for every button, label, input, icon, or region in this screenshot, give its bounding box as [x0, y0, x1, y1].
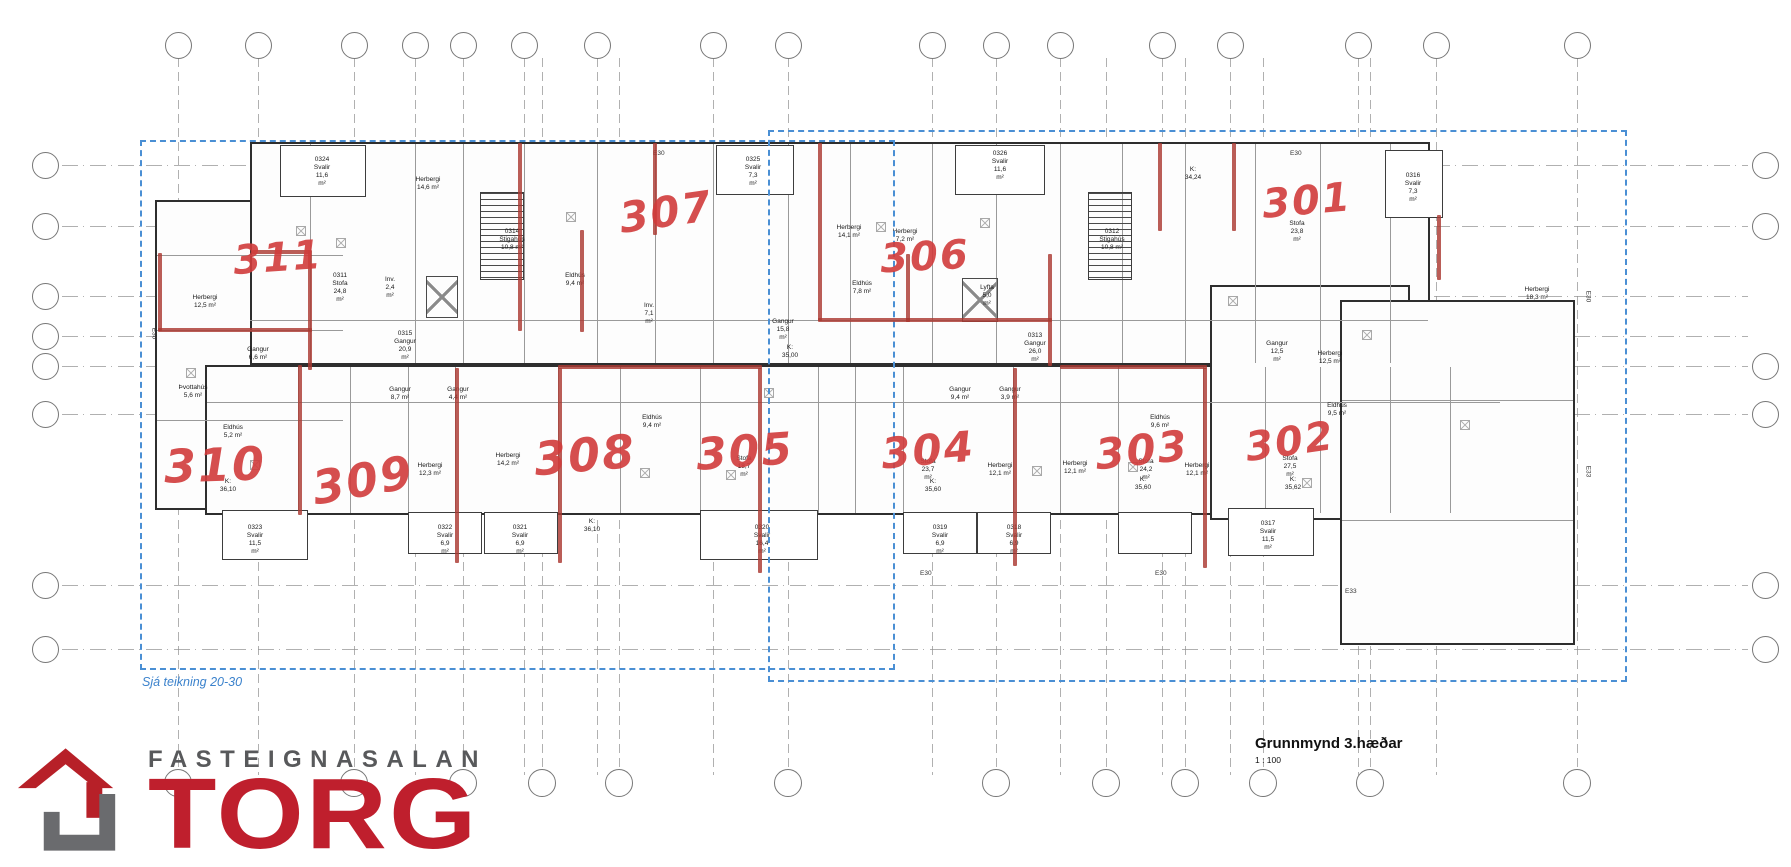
apartment-number: 306 — [879, 232, 971, 283]
grid-bubble-top — [1217, 32, 1244, 59]
apartment-boundary-mark — [1158, 143, 1162, 231]
grid-bubble-right — [1752, 401, 1779, 428]
grid-bubble-top — [1423, 32, 1450, 59]
grid-bubble-left — [32, 572, 59, 599]
logo-brand-text: TORG — [148, 774, 528, 854]
apartment-boundary-mark — [1437, 215, 1441, 280]
house-logo-icon — [14, 742, 138, 852]
apartment-boundary-mark — [1232, 143, 1236, 231]
apartment-number: 311 — [232, 232, 324, 284]
grid-bubble-top — [775, 32, 802, 59]
grid-bubble-top — [700, 32, 727, 59]
grid-bubble-top — [165, 32, 192, 59]
apartment-boundary-mark — [818, 143, 822, 321]
title-block: Grunnmynd 3.hæðar 1 : 100 — [1255, 735, 1403, 765]
grid-bubble-top — [584, 32, 611, 59]
apartment-number: 304 — [879, 422, 977, 479]
grid-bubble-left — [32, 283, 59, 310]
grid-bubble-bottom — [1092, 769, 1120, 797]
grid-bubble-top — [983, 32, 1010, 59]
apartment-boundary-mark — [580, 230, 584, 332]
grid-bubble-left — [32, 636, 59, 663]
apartment-boundary-mark — [558, 365, 762, 369]
apartment-number: 301 — [1260, 174, 1353, 228]
grid-bubble-top — [919, 32, 946, 59]
grid-bubble-left — [32, 401, 59, 428]
grid-bubble-top — [341, 32, 368, 59]
grid-bubble-left — [32, 323, 59, 350]
grid-bubble-bottom — [774, 769, 802, 797]
grid-bubble-bottom — [1249, 769, 1277, 797]
grid-bubble-top — [1047, 32, 1074, 59]
grid-bubble-top — [1149, 32, 1176, 59]
apartment-boundary-mark — [818, 318, 910, 322]
grid-bubble-left — [32, 213, 59, 240]
apartment-number: 308 — [532, 424, 638, 487]
grid-bubble-right — [1752, 572, 1779, 599]
grid-bubble-top — [1564, 32, 1591, 59]
drawing-scale: 1 : 100 — [1255, 755, 1403, 765]
grid-bubble-right — [1752, 213, 1779, 240]
grid-bubble-left — [32, 152, 59, 179]
drawing-title: Grunnmynd 3.hæðar — [1255, 735, 1403, 752]
apartment-number: 303 — [1093, 421, 1191, 480]
apartment-boundary-mark — [1048, 254, 1052, 366]
apartment-boundary-mark — [1013, 368, 1017, 566]
apartment-boundary-mark — [1060, 365, 1207, 369]
grid-bubble-right — [1752, 152, 1779, 179]
apartment-boundary-mark — [158, 253, 162, 331]
apartment-boundary-mark — [298, 365, 302, 515]
apartment-boundary-mark — [158, 328, 312, 332]
grid-bubble-top — [1345, 32, 1372, 59]
reference-dashed-box — [768, 130, 1627, 682]
grid-bubble-top — [450, 32, 477, 59]
reference-caption: Sjá teikning 20-30 — [142, 675, 242, 689]
grid-bubble-top — [402, 32, 429, 59]
grid-bubble-right — [1752, 636, 1779, 663]
apartment-boundary-mark — [455, 368, 459, 563]
grid-bubble-bottom — [982, 769, 1010, 797]
grid-bubble-bottom — [605, 769, 633, 797]
grid-bubble-left — [32, 353, 59, 380]
grid-bubble-bottom — [1356, 769, 1384, 797]
floor-plan-canvas: 0324 Svalir 11,6 m²Herbergi 14,6 m²0325 … — [0, 0, 1791, 867]
grid-bubble-bottom — [528, 769, 556, 797]
apartment-boundary-mark — [518, 143, 522, 331]
apartment-boundary-mark — [1203, 368, 1207, 568]
apartment-boundary-mark — [906, 318, 1052, 322]
grid-bubble-top — [511, 32, 538, 59]
apartment-number: 305 — [694, 423, 795, 481]
grid-bubble-right — [1752, 353, 1779, 380]
grid-bubble-bottom — [1171, 769, 1199, 797]
grid-bubble-bottom — [1563, 769, 1591, 797]
apartment-number: 310 — [163, 436, 267, 494]
grid-bubble-top — [245, 32, 272, 59]
torg-logo: FASTEIGNASALAN TORG — [14, 742, 487, 854]
